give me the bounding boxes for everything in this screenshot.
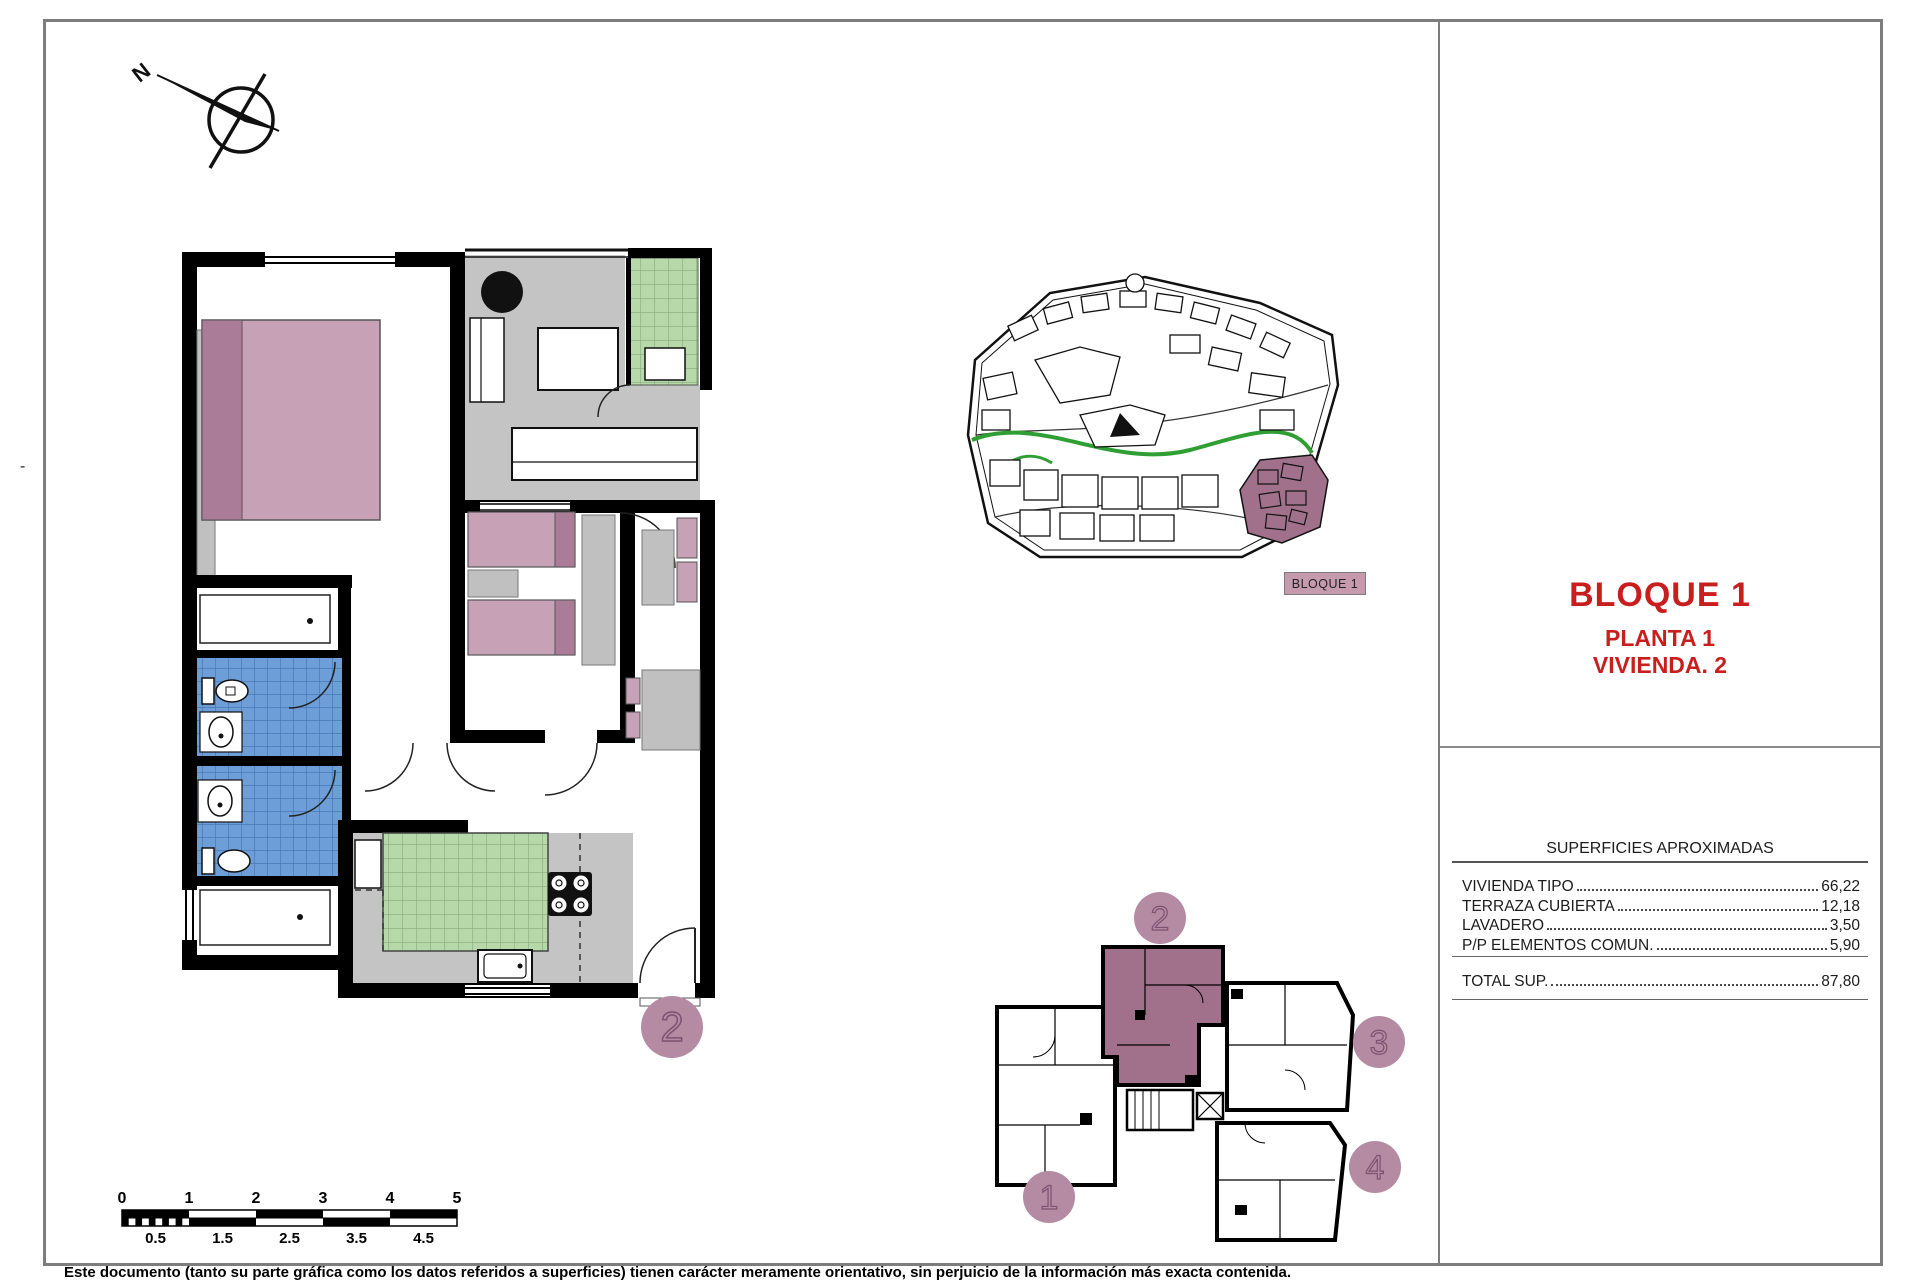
terrace-table <box>538 328 618 390</box>
key-unit-2-highlight <box>1103 947 1223 1085</box>
title-block-separator <box>1440 746 1880 748</box>
bedroom-2-door-arc <box>545 743 597 795</box>
total-label: TOTAL SUP. <box>1462 973 1548 991</box>
surface-value: 66,22 <box>1821 878 1860 896</box>
svg-text:0.5: 0.5 <box>145 1230 166 1247</box>
terrace-bench <box>512 428 697 480</box>
svg-text:0: 0 <box>118 1190 127 1207</box>
key-badge-4: 4 <box>1366 1149 1385 1187</box>
surfaces-row: P/P ELEMENTOS COMUN. 5,90 <box>1462 937 1860 957</box>
key-unit-4 <box>1217 1123 1345 1240</box>
entrance-door-arc <box>640 928 695 983</box>
dotted-leader <box>1547 928 1827 930</box>
dotted-leader <box>1551 984 1818 986</box>
bedroom2-nightstand <box>468 570 518 597</box>
kitchen <box>338 820 633 998</box>
site-plan <box>960 265 1350 570</box>
surfaces-table-header: SUPERFICIES APROXIMADAS <box>1440 840 1880 858</box>
toilet-1 <box>216 680 248 702</box>
sheet-subtitle-planta: PLANTA 1 <box>1440 625 1880 652</box>
dotted-leader <box>1657 948 1827 950</box>
surface-label: VIVIENDA TIPO <box>1462 878 1574 896</box>
bathtub-2 <box>200 890 330 945</box>
surfaces-header-rule <box>1452 861 1868 863</box>
hall-door-arc-left <box>365 743 413 791</box>
total-value: 87,80 <box>1821 973 1860 991</box>
kitchen-floor <box>383 833 548 951</box>
key-unit-1 <box>997 1007 1115 1185</box>
surfaces-table: VIVIENDA TIPO 66,22 TERRAZA CUBIERTA 12,… <box>1462 878 1860 956</box>
dotted-leader <box>1618 909 1818 911</box>
key-badge-3: 3 <box>1370 1024 1389 1062</box>
surface-value: 12,18 <box>1821 898 1860 916</box>
surfaces-mid-rule <box>1452 956 1868 957</box>
dining-table <box>642 670 700 750</box>
unit-badge-main-number: 2 <box>660 1003 683 1050</box>
scale-bottom-labels: 0.5 1.5 2.5 3.5 4.5 <box>145 1230 434 1247</box>
north-compass-icon: N <box>95 38 295 178</box>
scale-bar-strip <box>122 1210 457 1226</box>
svg-text:3: 3 <box>319 1190 328 1207</box>
margin-tick: - <box>20 458 25 476</box>
washing-machine <box>645 348 685 380</box>
svg-text:5: 5 <box>453 1190 462 1207</box>
toilet-2 <box>218 850 250 872</box>
bedroom2-wardrobe <box>582 515 615 665</box>
hallway <box>365 743 495 791</box>
svg-text:2: 2 <box>252 1190 261 1207</box>
surface-label: LAVADERO <box>1462 917 1544 935</box>
svg-text:4: 4 <box>386 1190 395 1207</box>
sheet-title: BLOQUE 1 <box>1440 576 1880 615</box>
svg-text:3.5: 3.5 <box>346 1230 367 1247</box>
surfaces-bottom-rule <box>1452 999 1868 1000</box>
key-badge-1: 1 <box>1040 1179 1059 1217</box>
surfaces-row: LAVADERO 3,50 <box>1462 917 1860 937</box>
svg-text:1: 1 <box>185 1190 194 1207</box>
dining-chair <box>626 678 640 704</box>
key-badge-2: 2 <box>1151 900 1170 938</box>
scale-top-labels: 0 1 2 3 4 5 <box>118 1190 462 1207</box>
key-plan: 1 2 3 4 <box>985 885 1415 1255</box>
surface-label: TERRAZA CUBIERTA <box>1462 898 1615 916</box>
bathroom-column <box>182 575 352 970</box>
dotted-leader <box>1577 889 1819 891</box>
bedroom-2 <box>450 500 715 795</box>
key-unit-3 <box>1227 983 1353 1110</box>
sofa-cushion <box>677 518 697 558</box>
svg-text:2.5: 2.5 <box>279 1230 300 1247</box>
svg-text:1.5: 1.5 <box>212 1230 233 1247</box>
sheet-subtitle-vivienda: VIVIENDA. 2 <box>1440 652 1880 679</box>
compass-circle <box>209 88 273 152</box>
surfaces-row: TERRAZA CUBIERTA 12,18 <box>1462 898 1860 918</box>
surfaces-total-row: TOTAL SUP. 87,80 <box>1462 973 1860 993</box>
terrace-shelf <box>470 318 504 402</box>
surface-label: P/P ELEMENTOS COMUN. <box>1462 937 1654 955</box>
compass-north-label: N <box>127 58 155 87</box>
scale-bar: 0 1 2 3 4 5 0.5 1.5 2.5 3.5 4.5 <box>95 1185 485 1250</box>
key-core <box>1127 1090 1223 1130</box>
svg-text:4.5: 4.5 <box>413 1230 434 1247</box>
main-floor-plan: 2 <box>150 200 750 1060</box>
footer-disclaimer: Este documento (tanto su parte gráfica c… <box>64 1264 1854 1281</box>
sofa-table <box>642 530 674 605</box>
unit-badge-main: 2 <box>641 996 703 1058</box>
hall-door-arc-right <box>447 743 495 791</box>
plant-icon <box>481 271 523 313</box>
surfaces-row: VIVIENDA TIPO 66,22 <box>1462 878 1860 898</box>
surface-value: 3,50 <box>1830 917 1860 935</box>
site-plan-label: BLOQUE 1 <box>1284 572 1366 595</box>
surface-value: 5,90 <box>1830 937 1860 955</box>
